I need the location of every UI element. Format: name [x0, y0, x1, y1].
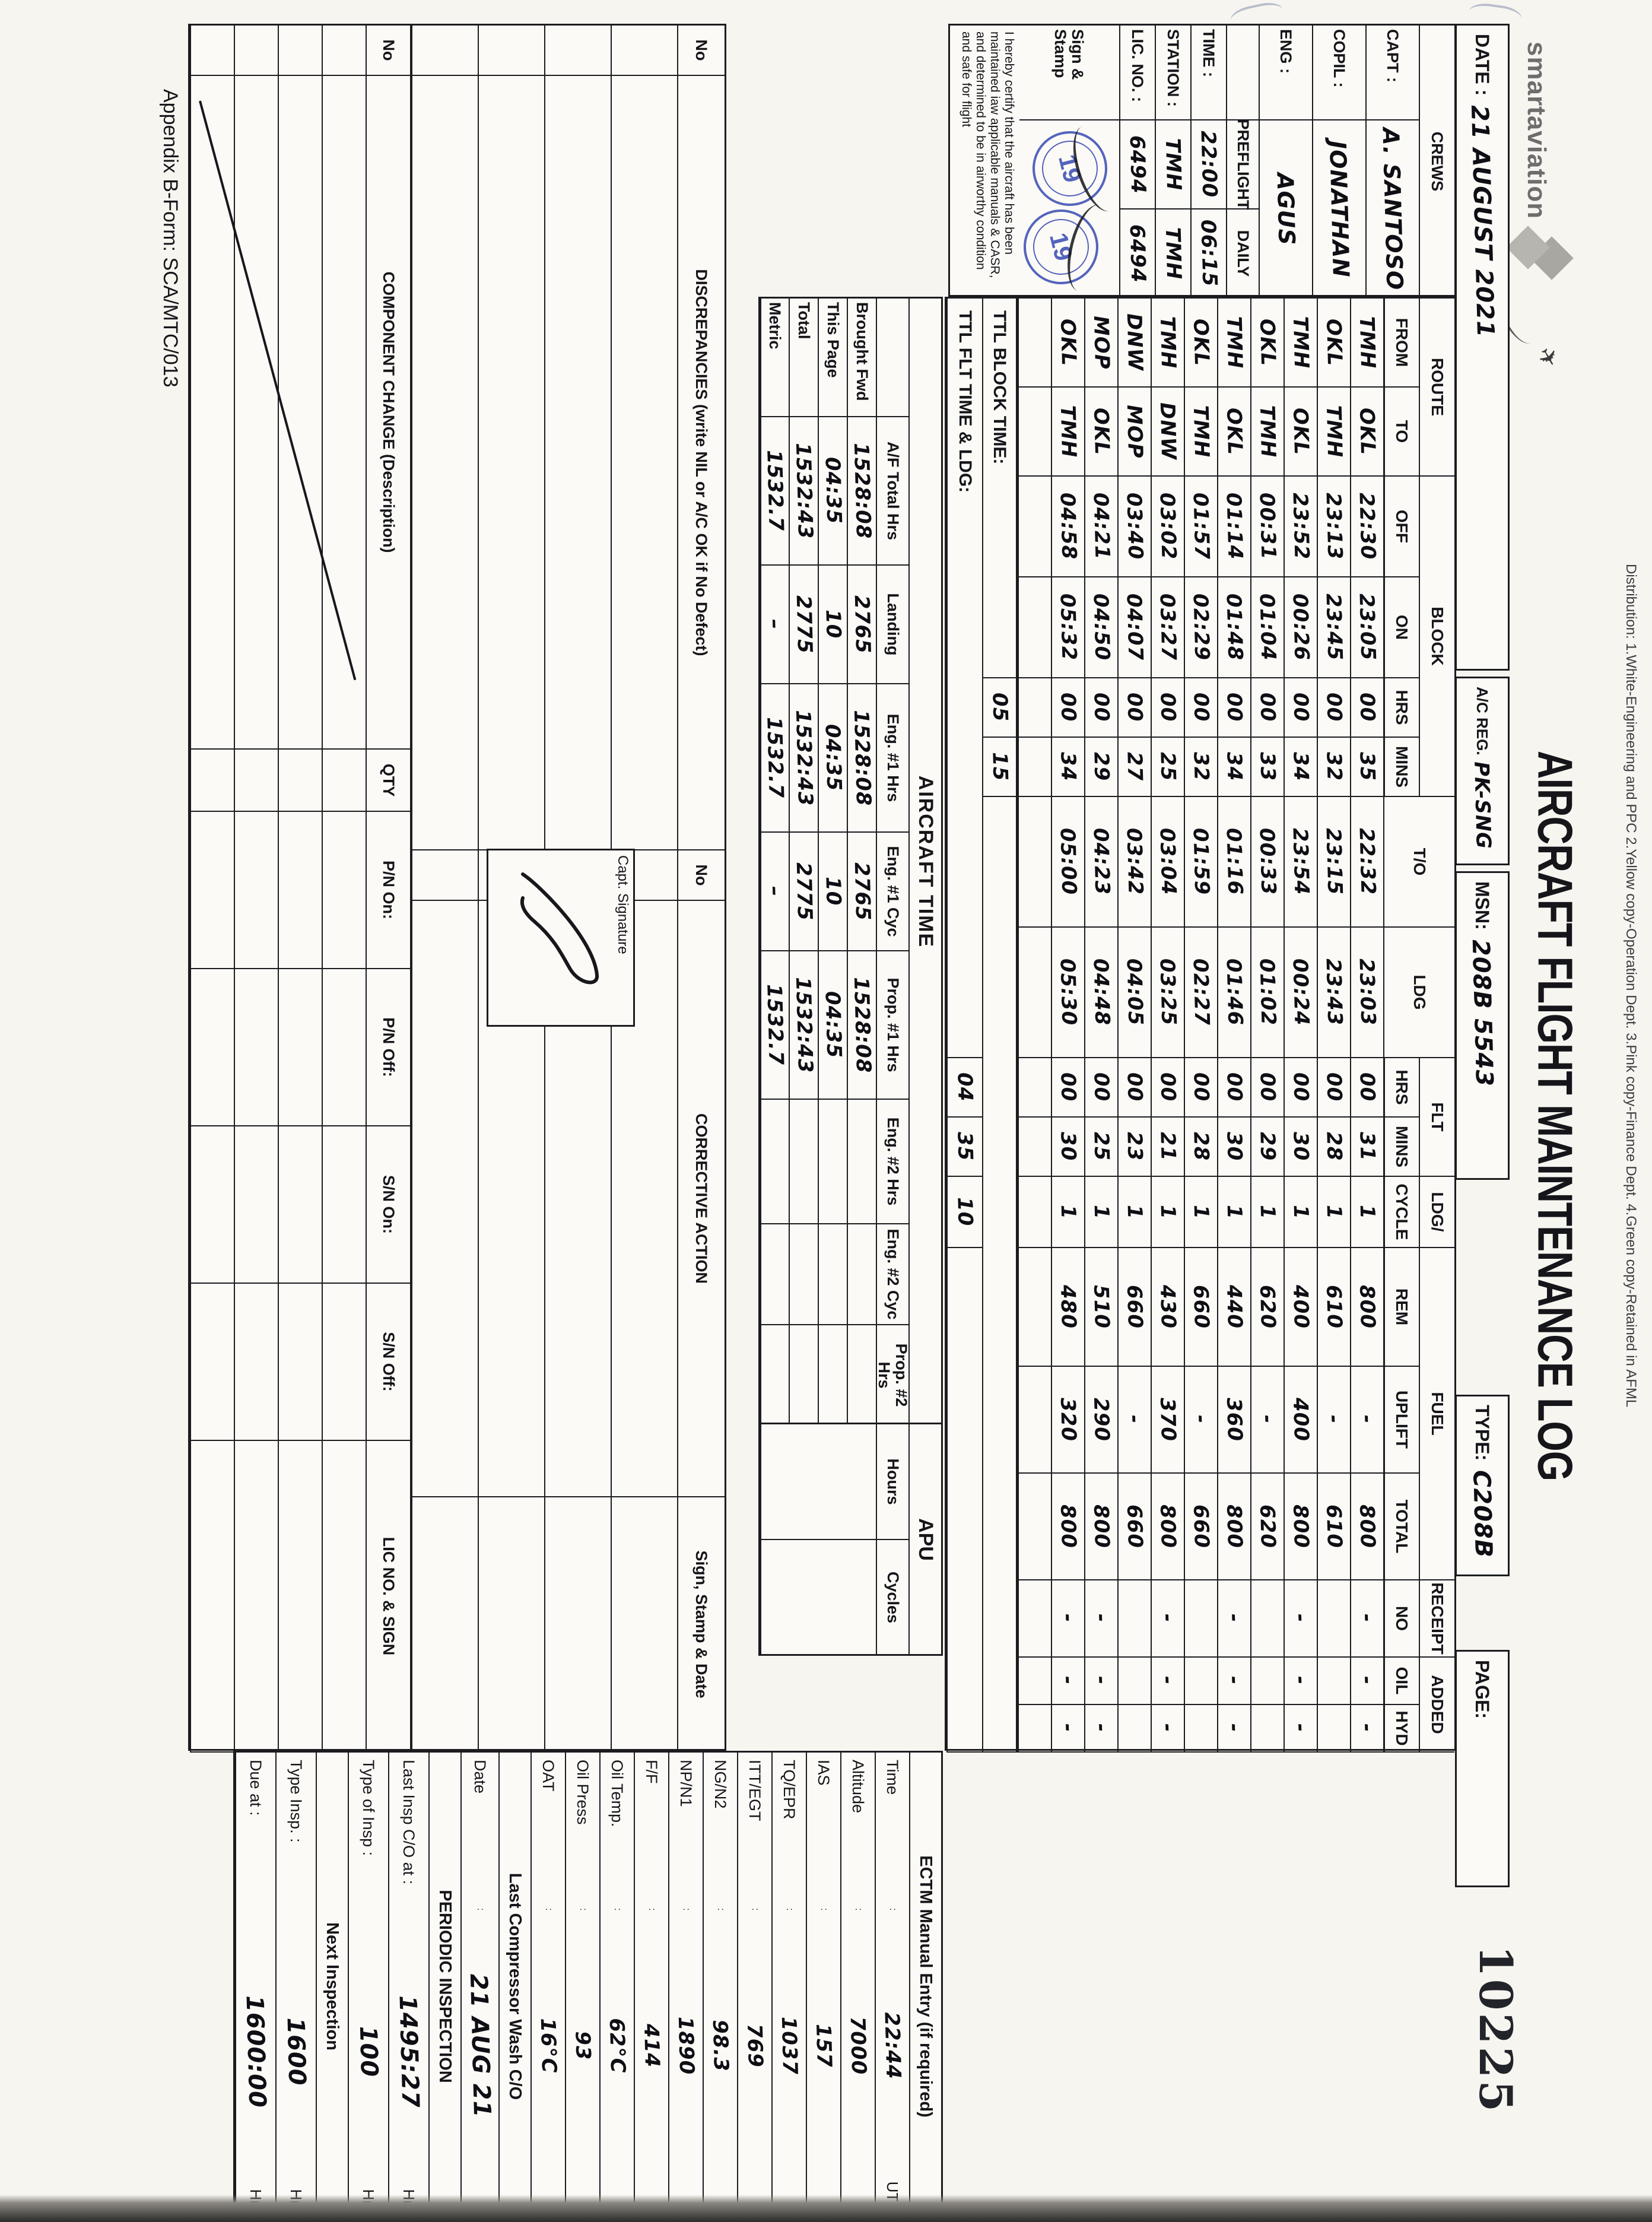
block-off-value: 23:13 [1317, 477, 1350, 577]
flt-hrs-value: 00 [1284, 1058, 1317, 1118]
fuel-total-value: 800 [1217, 1474, 1250, 1580]
flt-hrs-value: 00 [1084, 1058, 1117, 1118]
flt-mins-value [1018, 1118, 1051, 1177]
certification-statement: I hereby certify that the aircraft has b… [948, 24, 1019, 297]
hyd-added-value [1317, 1705, 1350, 1753]
flt-hrs-value: 00 [1151, 1058, 1184, 1118]
hyd-added-value [1018, 1705, 1051, 1753]
ldg-cycle-value: 1 [1151, 1177, 1184, 1248]
fuel-rem-value: 510 [1084, 1248, 1117, 1367]
block-on-value: 03:27 [1151, 577, 1184, 678]
ttl-block-mins: 15 [982, 738, 1018, 797]
landing-count: 10 [818, 566, 847, 684]
ttl-block-hrs: 05 [982, 678, 1018, 738]
licno-preflight: 6494 [1119, 120, 1155, 209]
block-hrs-value: 00 [1184, 678, 1217, 738]
prop2-hrs [847, 1325, 876, 1426]
block-mins-value: 27 [1117, 738, 1151, 797]
fuel-rem-value: 430 [1151, 1248, 1184, 1367]
component-cell [190, 26, 234, 76]
component-cell [322, 26, 366, 76]
form-title: AIRCRAFT FLIGHT MAINTENANCE LOG [1499, 742, 1611, 1490]
component-change-table: No COMPONENT CHANGE (Description) QTY P/… [188, 24, 412, 1751]
landing-time-value: 23:43 [1317, 928, 1350, 1058]
takeoff-col-header: T/O [1383, 797, 1454, 928]
lic-sign-header: LIC NO. & SIGN [366, 1441, 410, 1753]
flt-hrs-value: 00 [1317, 1058, 1350, 1118]
ectm-value: 414 [637, 1926, 667, 2166]
fuel-total-col-header: TOTAL [1383, 1474, 1419, 1580]
next-inspection-row: Due at : 1600:00 Hrs [235, 1753, 275, 2220]
receipt-no-value [1317, 1580, 1350, 1658]
block-group-header: BLOCK [1419, 477, 1454, 797]
discrepancy-cell [411, 1497, 478, 1753]
plane-icon: ✈ [1531, 342, 1565, 373]
eng-label: ENG : [1259, 26, 1312, 120]
block-on-value: 01:48 [1217, 577, 1250, 678]
fuel-uplift-value: - [1184, 1367, 1217, 1474]
eng2-cyc [760, 1224, 789, 1325]
landing-time-value: 01:02 [1250, 928, 1284, 1058]
receipt-no-value [1250, 1580, 1284, 1658]
landing-time-value: 04:48 [1084, 928, 1117, 1058]
sign-stamp-date-header: Sign, Stamp & Date [677, 1497, 725, 1753]
licno-label: LIC. NO. : [1119, 26, 1155, 120]
fuel-uplift-value: - [1250, 1367, 1284, 1474]
flt-mins-value: 28 [1184, 1118, 1217, 1177]
component-cell [234, 1126, 278, 1284]
capt-label: CAPT : [1365, 26, 1419, 120]
block-hrs-value: 00 [1151, 678, 1184, 738]
date-box: DATE : 21 AUGUST 2021 [1455, 24, 1510, 671]
block-mins-value: 32 [1184, 738, 1217, 797]
ldg-cycle-value: 1 [1317, 1177, 1350, 1248]
ectm-inspection-panel: ECTM Manual Entry (if required) Time : 2… [233, 1751, 943, 2222]
ectm-colon: : [853, 1908, 863, 1926]
component-cell [278, 812, 322, 969]
ectm-colon: : [887, 1908, 898, 1926]
landing-time-value [1018, 928, 1051, 1058]
block-mins-value: 29 [1084, 738, 1117, 797]
component-cell [278, 1441, 322, 1753]
ectm-value: 16°C [533, 1926, 564, 2166]
periodic-label: Type of Insp : [360, 1760, 378, 1938]
discrepancy-cell [611, 1497, 677, 1753]
discrepancy-cell [411, 901, 478, 1497]
takeoff-time-value: 23:54 [1284, 797, 1317, 928]
fuel-total-value: 800 [1051, 1474, 1084, 1580]
landing-time-value: 23:03 [1350, 928, 1383, 1058]
ttl-flt-time-label: TTL FLT TIME & LDG: [946, 299, 982, 1058]
ldg-cycle-value: 1 [1051, 1177, 1084, 1248]
periodic-value: 100 [352, 1937, 385, 2166]
landing-time-value: 01:46 [1217, 928, 1250, 1058]
ectm-colon: : [818, 1908, 829, 1926]
at-row-label: Metric [760, 299, 789, 417]
flt-mins-value: 28 [1317, 1118, 1350, 1177]
to-value: TMH [1051, 388, 1084, 477]
block-off-value: 23:52 [1284, 477, 1317, 577]
time-label: TIME : [1190, 26, 1226, 120]
daily-header: DAILY [1226, 209, 1259, 299]
ldg-cycle-value: 1 [1250, 1177, 1284, 1248]
ectm-row: Time : 22:44 UTC [875, 1753, 909, 2220]
block-on-value: 01:04 [1250, 577, 1284, 678]
ectm-row: Altitude : 7000 [840, 1753, 875, 2220]
ldg-group-header: LDG/ [1419, 1177, 1454, 1248]
capt-signature-label: Capt. Signature [612, 850, 633, 1025]
capt-signature-icon [505, 850, 612, 1017]
ectm-row: OAT : 16°C [530, 1753, 565, 2220]
aircraft-time-col-header: Eng. #1 Hrs [876, 684, 908, 833]
takeoff-time-value: 03:04 [1151, 797, 1184, 928]
flt-hrs-value: 00 [1350, 1058, 1383, 1118]
fuel-uplift-value: 290 [1084, 1367, 1117, 1474]
ectm-label: F/F [643, 1760, 661, 1908]
discrepancy-cell [478, 76, 544, 850]
ectm-label: NP/N1 [677, 1760, 695, 1908]
ldg-cycle-value: 1 [1217, 1177, 1250, 1248]
component-cell [234, 750, 278, 812]
oil-added-value: - [1051, 1658, 1084, 1705]
component-cell [322, 1441, 366, 1753]
ectm-value: 1037 [774, 1926, 805, 2166]
block-off-value [1018, 477, 1051, 577]
aircraft-time-corner [876, 299, 908, 417]
at-row-label: Total [789, 299, 818, 417]
component-cell [190, 1126, 234, 1284]
next-insp-label: Due at : [247, 1760, 265, 1938]
eng2-hrs [847, 1100, 876, 1224]
ldg-cycle-value: 1 [1184, 1177, 1217, 1248]
ectm-value: 98.3 [706, 1926, 736, 2166]
next-inspection-rows: Type Insp. : 1600 Hrs Due at : 1600:00 H… [235, 1753, 316, 2220]
periodic-row: Type of Insp : 100 Hrs [348, 1753, 388, 2220]
flt-group-header: FLT [1419, 1058, 1454, 1177]
block-hrs-value: 00 [1117, 678, 1151, 738]
prop2-hrs [760, 1325, 789, 1426]
component-cell [322, 812, 366, 969]
from-col-header: FROM [1383, 299, 1419, 388]
receipt-no-value: - [1217, 1580, 1250, 1658]
off-col-header: OFF [1383, 477, 1419, 577]
aircraft-time-col-header: Eng. #2 Hrs [876, 1100, 908, 1224]
takeoff-time-value: 03:42 [1117, 797, 1151, 928]
from-value: TMH [1284, 299, 1317, 388]
from-value: TMH [1350, 299, 1383, 388]
discrepancy-cell [611, 26, 677, 76]
at-row-label: Brought Fwd [847, 299, 876, 417]
component-no-header: No [366, 26, 410, 76]
ectm-row: Oil Temp. : 62°C [599, 1753, 634, 2220]
fuel-rem-value: 660 [1184, 1248, 1217, 1367]
logo-wordmark: smartaviation [1521, 42, 1551, 219]
landing-time-value: 04:05 [1117, 928, 1151, 1058]
prop2-hrs [818, 1325, 847, 1426]
ectm-colon: : [612, 1908, 622, 1926]
ectm-colon: : [749, 1908, 760, 1926]
flt-mins-value: 30 [1217, 1118, 1250, 1177]
component-cell [190, 1284, 234, 1441]
eng1-hrs: 04:35 [818, 684, 847, 833]
from-value: TMH [1151, 299, 1184, 388]
component-cell [190, 1441, 234, 1753]
from-value: MOP [1084, 299, 1117, 388]
eng1-hrs: 1532:43 [789, 684, 818, 833]
from-value: TMH [1217, 299, 1250, 388]
block-mins-value: 25 [1151, 738, 1184, 797]
landing-count: – [760, 566, 789, 684]
block-mins-col-header: MINS [1383, 738, 1419, 797]
discrepancy-cell [478, 1497, 544, 1753]
af-total-hrs: 1528:08 [847, 417, 876, 566]
apu-cycles-label: Cycles [876, 1540, 908, 1656]
compressor-wash-date-row: Date : 21 AUG 21 [460, 1753, 498, 2220]
wash-date-value: 21 AUG 21 [463, 1925, 497, 2166]
block-hrs-value: 00 [1084, 678, 1117, 738]
from-value [1018, 299, 1051, 388]
wash-date-colon: : [475, 1908, 485, 1926]
smartaviation-logo: smartaviation ✈ [1504, 42, 1569, 410]
eng2-hrs [818, 1100, 847, 1224]
takeoff-time-value: 01:16 [1217, 797, 1250, 928]
fuel-total-value: 610 [1317, 1474, 1350, 1580]
fuel-rem-value: 620 [1250, 1248, 1284, 1367]
component-cell [278, 1284, 322, 1441]
component-qty-header: QTY [366, 750, 410, 812]
fuel-total-value: 800 [1151, 1474, 1184, 1580]
next-insp-value: 1600 [279, 1937, 313, 2166]
receipt-no-value: - [1350, 1580, 1383, 1658]
flt-mins-value: 25 [1084, 1118, 1117, 1177]
ectm-row: NG/N2 : 98.3 [703, 1753, 737, 2220]
discrepancy-desc-header: DISCREPANCIES (write NIL or A/C OK if No… [677, 76, 725, 850]
takeoff-time-value: 22:32 [1350, 797, 1383, 928]
fuel-rem-value: 440 [1217, 1248, 1250, 1367]
block-on-value: 05:32 [1051, 577, 1084, 678]
aircraft-time-col-header: Landing [876, 566, 908, 684]
msn-label: MSN: [1472, 881, 1494, 930]
takeoff-time-value [1018, 797, 1051, 928]
reg-label: A/C REG. [1473, 687, 1492, 756]
block-off-value: 01:57 [1184, 477, 1217, 577]
ectm-value: 157 [809, 1926, 839, 2166]
ttl-block-spacer [982, 797, 1018, 1753]
copil-label: COPIL : [1312, 26, 1365, 120]
periodic-row: Last Insp C/O at : 1495:27 Hrs [388, 1753, 428, 2220]
eng1-cyc: 10 [818, 833, 847, 951]
apu-table: APU Hours Cycles [758, 1424, 943, 1656]
block-hrs-value: 00 [1350, 678, 1383, 738]
fuel-uplift-value: 370 [1151, 1367, 1184, 1474]
fuel-total-value: 660 [1117, 1474, 1151, 1580]
next-insp-value: 1600:00 [239, 1937, 272, 2166]
landing-time-value: 03:25 [1151, 928, 1184, 1058]
ectm-colon: : [681, 1908, 691, 1926]
flight-log-table: ROUTE BLOCK T/O LDG FLT LDG/ FUEL RECEIP… [945, 297, 1456, 1751]
ectm-label: Oil Temp. [608, 1760, 627, 1908]
hyd-added-value [1184, 1705, 1217, 1753]
fuel-total-value: 800 [1284, 1474, 1317, 1580]
to-value: DNW [1151, 388, 1184, 477]
fuel-uplift-value: - [1117, 1367, 1151, 1474]
logo-swirl-icon: ✈ [1507, 226, 1566, 297]
block-off-value: 03:02 [1151, 477, 1184, 577]
sign-stamp-label: Sign & Stamp [1018, 26, 1119, 120]
capt-signature-box: Capt. Signature [487, 849, 635, 1027]
hyd-added-value: - [1284, 1705, 1317, 1753]
discrepancy-cell [611, 76, 677, 850]
licno-daily: 6494 [1119, 209, 1155, 299]
page-label: PAGE: [1472, 1660, 1494, 1719]
discrepancy-cell [411, 76, 478, 850]
block-mins-value: 34 [1284, 738, 1317, 797]
landing-count: 2765 [847, 566, 876, 684]
eng2-cyc [847, 1224, 876, 1325]
oil-added-value [1117, 1658, 1151, 1705]
oil-added-value: - [1151, 1658, 1184, 1705]
added-group-header: ADDED [1419, 1658, 1454, 1753]
component-cell [322, 750, 366, 812]
flt-hrs-value: 00 [1184, 1058, 1217, 1118]
eng1-hrs: 1532.7 [760, 684, 789, 833]
ldg-cycle-value: 1 [1350, 1177, 1383, 1248]
fuel-group-header: FUEL [1419, 1248, 1454, 1580]
hyd-added-value: - [1151, 1705, 1184, 1753]
eng-name: AGUS [1259, 120, 1312, 299]
hyd-added-value [1117, 1705, 1151, 1753]
ectm-label: OAT [539, 1760, 558, 1908]
aircraft-time-col-header: Eng. #2 Cyc [876, 1224, 908, 1325]
page-box: PAGE: [1455, 1650, 1510, 1887]
component-cell [278, 750, 322, 812]
type-box: TYPE: C208B [1455, 1395, 1510, 1576]
ldg-cycle-value: 1 [1117, 1177, 1151, 1248]
ectm-label: Altitude [849, 1760, 868, 1908]
component-cell [234, 1284, 278, 1441]
oil-added-value [1250, 1658, 1284, 1705]
discrepancy-no-header: No [677, 26, 725, 76]
next-inspection-header: Next Inspection [316, 1753, 348, 2220]
component-cell [322, 969, 366, 1126]
eng2-hrs [760, 1100, 789, 1224]
discrepancy-cell [544, 76, 611, 850]
msn-value: 208B 5543 [1467, 939, 1498, 1087]
oil-added-value [1184, 1658, 1217, 1705]
flt-hrs-value: 00 [1051, 1058, 1084, 1118]
hyd-added-value: - [1084, 1705, 1117, 1753]
eng1-cyc: – [760, 833, 789, 951]
fuel-total-value: 800 [1350, 1474, 1383, 1580]
ectm-label: ITT/EGT [746, 1760, 764, 1908]
ttl-flt-hrs: 04 [946, 1058, 982, 1118]
component-cell [278, 26, 322, 76]
ectm-label: Oil Press [574, 1760, 592, 1908]
block-hrs-value: 00 [1217, 678, 1250, 738]
fuel-uplift-value: 320 [1051, 1367, 1084, 1474]
block-hrs-value [1018, 678, 1051, 738]
sn-on-header: S/N On: [366, 1126, 410, 1284]
to-value: OKL [1217, 388, 1250, 477]
landing-col-header: LDG [1383, 928, 1454, 1058]
fuel-uplift-col-header: UPLIFT [1383, 1367, 1419, 1474]
block-off-value: 03:40 [1117, 477, 1151, 577]
af-total-hrs: 1532.7 [760, 417, 789, 566]
to-value [1018, 388, 1051, 477]
oil-added-value [1317, 1658, 1350, 1705]
af-total-hrs: 1532:43 [789, 417, 818, 566]
time-daily: 06:15 [1190, 209, 1226, 299]
landing-time-value: 05:30 [1051, 928, 1084, 1058]
ttl-block-time-label: TTL BLOCK TIME: [982, 299, 1018, 678]
landing-time-value: 00:24 [1284, 928, 1317, 1058]
ectm-colon: : [646, 1908, 657, 1926]
ectm-value: 769 [740, 1926, 770, 2166]
station-preflight: TMH [1155, 120, 1190, 209]
discrepancy-cell [478, 26, 544, 76]
component-cell [322, 1284, 366, 1441]
aircraft-time-col-header: Prop. #2 Hrs [876, 1325, 908, 1426]
discrepancy-cell [411, 26, 478, 76]
fuel-total-value: 800 [1084, 1474, 1117, 1580]
compressor-wash-header: Last Compressor Wash C/O [498, 1753, 530, 2220]
time-preflight: 22:00 [1190, 120, 1226, 209]
block-hrs-value: 00 [1317, 678, 1350, 738]
reg-value: PK-SNG [1469, 761, 1495, 849]
block-off-value: 22:30 [1350, 477, 1383, 577]
corrective-action-header: CORRECTIVE ACTION [677, 901, 725, 1497]
crews-header: CREWS [1419, 26, 1454, 299]
ectm-label: IAS [815, 1760, 833, 1908]
flt-mins-value: 30 [1051, 1118, 1084, 1177]
block-on-value [1018, 577, 1051, 678]
pn-on-header: P/N On: [366, 812, 410, 969]
apu-cycles-value [760, 1540, 876, 1656]
flt-mins-value: 23 [1117, 1118, 1151, 1177]
scanned-page: Distribution: 1.White-Engineering and PP… [0, 0, 1652, 2222]
capt-name: A. SANTOSO [1365, 120, 1419, 299]
component-cell [234, 1441, 278, 1753]
oil-col-header: OIL [1383, 1658, 1419, 1705]
block-mins-value [1018, 738, 1051, 797]
ectm-row: Oil Press : 93 [565, 1753, 599, 2220]
component-cell [190, 812, 234, 969]
ldg-cycle-value [1018, 1177, 1051, 1248]
receipt-group-header: RECEIPT [1419, 1580, 1454, 1658]
fuel-rem-value [1018, 1248, 1051, 1367]
component-cell [278, 1126, 322, 1284]
aircraft-reg-box: A/C REG. PK-SNG [1455, 677, 1510, 865]
oil-added-value: - [1084, 1658, 1117, 1705]
ectm-value: 22:44 [878, 1926, 908, 2166]
fuel-rem-value: 610 [1317, 1248, 1350, 1367]
to-value: TMH [1184, 388, 1217, 477]
component-cell [322, 1126, 366, 1284]
flt-hrs-col-header: HRS [1383, 1058, 1419, 1118]
aircraft-time-col-header: A/F Total Hrs [876, 417, 908, 566]
eng1-hrs: 1528:08 [847, 684, 876, 833]
from-value: OKL [1184, 299, 1217, 388]
component-cell [190, 969, 234, 1126]
block-on-value: 00:26 [1284, 577, 1317, 678]
takeoff-time-value: 01:59 [1184, 797, 1217, 928]
fuel-rem-col-header: REM [1383, 1248, 1419, 1367]
block-on-value: 23:45 [1317, 577, 1350, 678]
next-inspection-row: Type Insp. : 1600 Hrs [275, 1753, 316, 2220]
ectm-row: F/F : 414 [634, 1753, 668, 2220]
apu-hours-value [760, 1424, 876, 1540]
block-hrs-col-header: HRS [1383, 678, 1419, 738]
